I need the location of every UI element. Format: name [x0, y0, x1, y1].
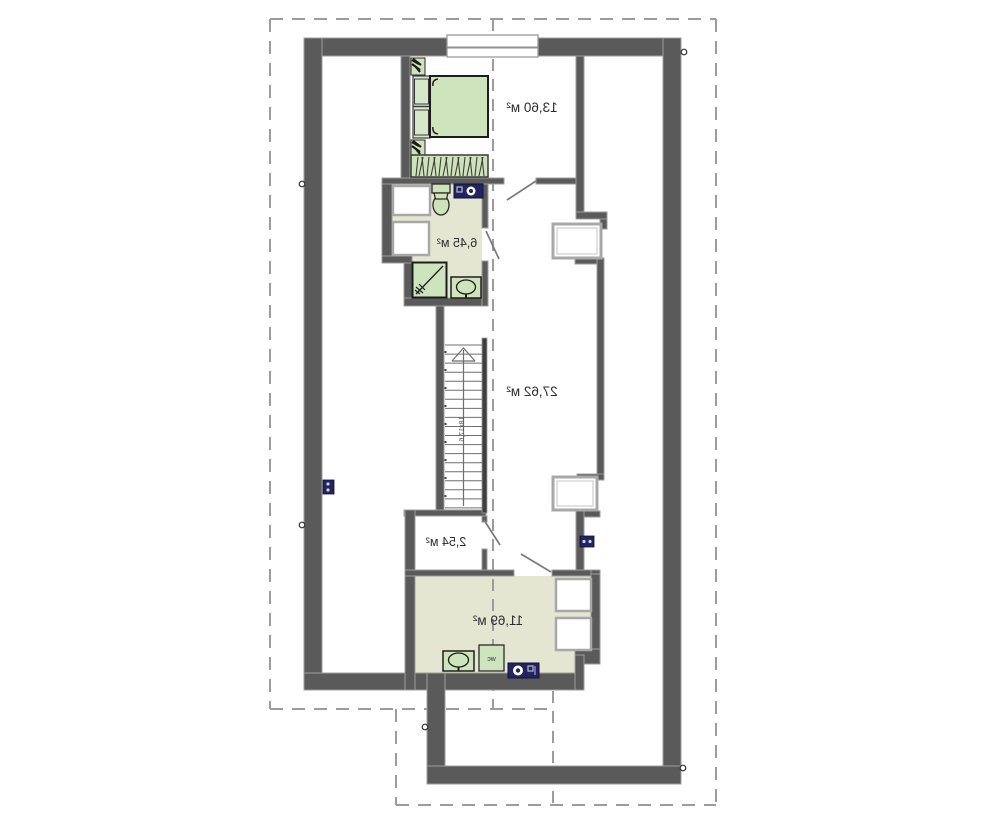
svg-text:27,62 м²: 27,62 м² — [506, 384, 558, 399]
svg-text:6,45 м²: 6,45 м² — [437, 236, 478, 250]
svg-text:wc: wc — [487, 656, 497, 663]
svg-text:13,60 м²: 13,60 м² — [506, 100, 558, 115]
svg-text:11,69 м²: 11,69 м² — [472, 613, 523, 628]
svg-text:2,54 м²: 2,54 м² — [426, 535, 467, 549]
svg-text:18x17,6: 18x17,6 — [459, 417, 466, 442]
